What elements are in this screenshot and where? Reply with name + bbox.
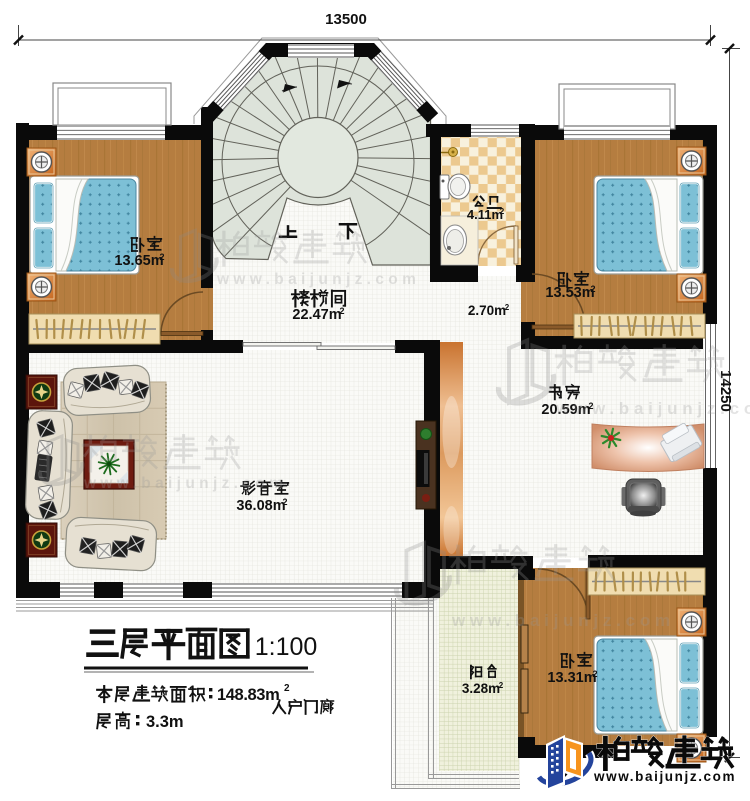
svg-text:www.baijunjz.com: www.baijunjz.com xyxy=(83,475,287,492)
svg-text:148.83m: 148.83m xyxy=(217,686,279,704)
svg-text:2: 2 xyxy=(499,681,504,690)
svg-text:2: 2 xyxy=(159,252,164,262)
svg-text:13.65m: 13.65m xyxy=(114,253,163,269)
svg-text:1:100: 1:100 xyxy=(255,633,318,661)
svg-text:www.baijunjz.com: www.baijunjz.com xyxy=(216,271,420,288)
svg-text:2.70m: 2.70m xyxy=(468,303,506,318)
svg-text:2: 2 xyxy=(500,207,505,216)
svg-text:2: 2 xyxy=(592,669,597,679)
svg-text:2: 2 xyxy=(282,497,287,507)
svg-text:3.3m: 3.3m xyxy=(146,713,184,731)
svg-text:www.baijunjz.com: www.baijunjz.com xyxy=(555,399,750,418)
svg-text:2: 2 xyxy=(284,683,290,694)
svg-text:13.53m: 13.53m xyxy=(545,285,594,301)
svg-text:4.11m: 4.11m xyxy=(467,207,503,222)
svg-text:13.31m: 13.31m xyxy=(547,670,596,686)
svg-text:3.28m: 3.28m xyxy=(462,681,500,696)
svg-text:www.baijunjz.com: www.baijunjz.com xyxy=(451,611,675,630)
svg-text:www.baijunjz.com: www.baijunjz.com xyxy=(593,769,736,784)
svg-text:22.47m: 22.47m xyxy=(292,307,341,323)
svg-text:36.08m: 36.08m xyxy=(236,498,285,514)
svg-text:2: 2 xyxy=(590,284,595,294)
svg-text:13500: 13500 xyxy=(325,11,367,28)
svg-text:2: 2 xyxy=(339,306,344,316)
svg-text:2: 2 xyxy=(505,303,510,312)
